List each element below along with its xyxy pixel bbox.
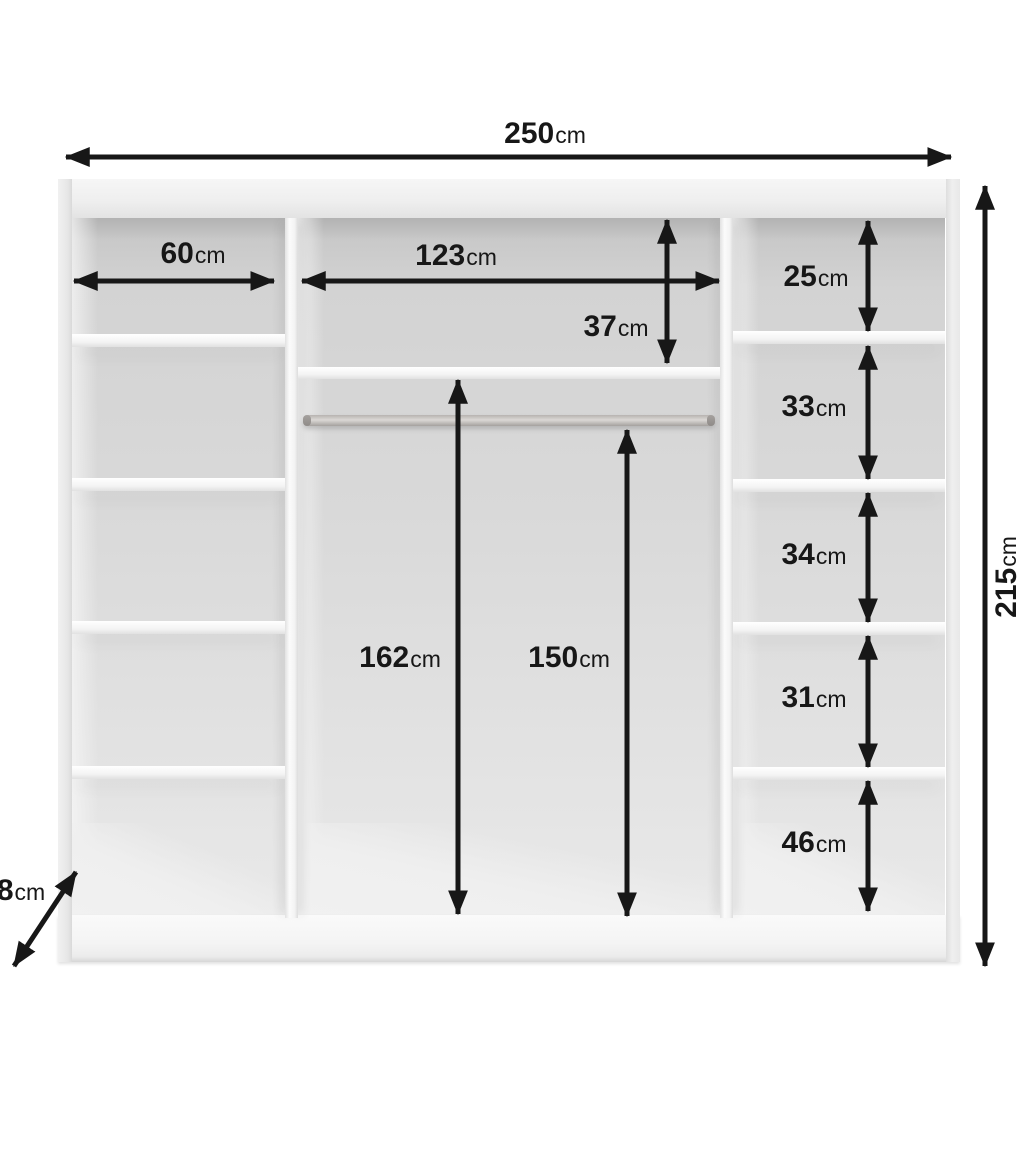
left-width-value: 60 [160, 237, 193, 270]
total-height-unit: cm [995, 536, 1021, 567]
right-compartment-4-label: 31cm [781, 683, 846, 713]
left-shelf-2 [72, 478, 285, 491]
right-compartment-4-value: 31 [781, 681, 814, 714]
right-compartment-3-label: 34cm [781, 540, 846, 570]
right-compartment-5-value: 46 [781, 826, 814, 859]
interior-height-label: 162cm [359, 643, 441, 673]
right-compartment-1-unit: cm [818, 265, 849, 291]
top-compartment-height-label: 37cm [583, 312, 648, 342]
left-width-unit: cm [195, 242, 226, 268]
top-compartment-height-unit: cm [618, 315, 649, 341]
left-shelf-1 [72, 334, 285, 347]
total-height-label: 215cm [992, 536, 1022, 618]
left-shelf-3 [72, 621, 285, 634]
right-compartment-3-unit: cm [816, 543, 847, 569]
right-compartment-5-unit: cm [816, 831, 847, 857]
right-shelf-4 [733, 767, 945, 780]
base-panel [58, 915, 960, 962]
right-compartment-2-unit: cm [816, 395, 847, 421]
left-width-label: 60cm [160, 239, 225, 269]
base-height-label: 8cm [0, 876, 45, 906]
right-compartment-2-value: 33 [781, 390, 814, 423]
rail-height-label: 150cm [528, 643, 610, 673]
right-compartment-1-value: 25 [783, 260, 816, 293]
middle-width-label: 123cm [415, 241, 497, 271]
base-height-unit: cm [15, 879, 46, 905]
right-side-panel [946, 179, 960, 962]
middle-top-shelf [298, 367, 720, 379]
interior-height-unit: cm [410, 646, 441, 672]
middle-width-value: 123 [415, 239, 465, 272]
left-shelf-4 [72, 766, 285, 779]
right-compartment-5-label: 46cm [781, 828, 846, 858]
left-column-back-panel [72, 218, 285, 918]
left-divider-panel [285, 218, 298, 918]
wardrobe-dimension-diagram: 250cm 215cm 60cm 123cm 37cm 162cm 150cm … [0, 0, 1024, 1152]
top-compartment-height-value: 37 [583, 310, 616, 343]
total-height-value: 215 [990, 568, 1023, 618]
rail-height-value: 150 [528, 641, 578, 674]
base-height-value: 8 [0, 874, 14, 907]
rail-height-unit: cm [579, 646, 610, 672]
right-shelf-3 [733, 622, 945, 635]
middle-width-unit: cm [466, 244, 497, 270]
right-compartment-2-label: 33cm [781, 392, 846, 422]
top-panel [58, 179, 960, 218]
interior-height-value: 162 [359, 641, 409, 674]
right-shelf-1 [733, 331, 945, 344]
total-width-value: 250 [504, 117, 554, 150]
total-width-label: 250cm [504, 119, 586, 149]
total-width-unit: cm [555, 122, 586, 148]
right-compartment-4-unit: cm [816, 686, 847, 712]
right-compartment-1-label: 25cm [783, 262, 848, 292]
right-shelf-2 [733, 479, 945, 492]
left-side-panel [58, 179, 72, 962]
right-divider-panel [720, 218, 733, 918]
hanging-rail [303, 415, 715, 426]
right-compartment-3-value: 34 [781, 538, 814, 571]
middle-column-back-panel [298, 218, 720, 918]
